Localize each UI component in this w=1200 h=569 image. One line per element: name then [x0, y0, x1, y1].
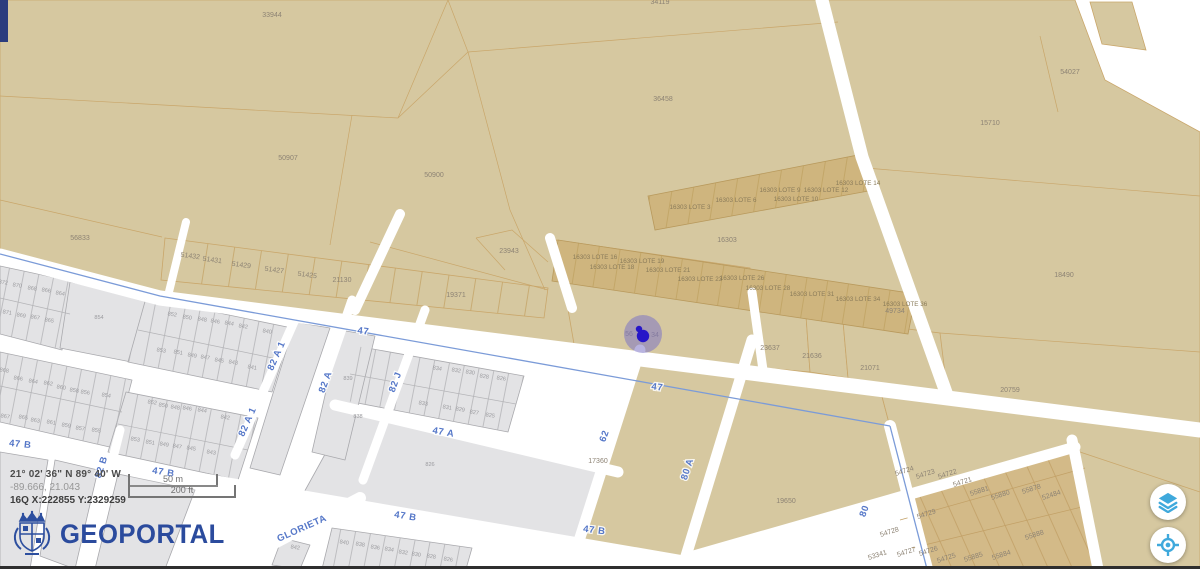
parcel-label: 854 — [94, 315, 103, 321]
parcel-label: 33944 — [262, 12, 282, 19]
street-label: 47 — [357, 325, 370, 337]
street-label: 47 — [651, 381, 664, 393]
locate-icon — [1157, 534, 1179, 556]
sidebar-edge[interactable] — [0, 0, 8, 42]
street-label: 47 B — [9, 438, 32, 451]
lote-parcel-label: 16303 LOTE 26 — [720, 275, 765, 282]
parcel-label: 50907 — [278, 155, 298, 162]
coords-utm: 16Q X:222855 Y:2329259 — [10, 494, 126, 507]
parcel-label: 36458 — [653, 96, 673, 103]
parcel-label: 16303 — [717, 237, 737, 244]
coords-decimal: -89.666, 21.043 — [10, 481, 126, 494]
lote-parcel-label: 16303 LOTE 18 — [590, 264, 635, 271]
lote-parcel-label: 16303 LOTE 23 — [678, 276, 723, 283]
parcel-label: 18490 — [1054, 272, 1074, 279]
parcel-label: 17360 — [588, 458, 608, 465]
coordinate-readout: 21° 02' 36" N 89° 40' W -89.666, 21.043 … — [10, 468, 126, 507]
parcel-label: 872 — [0, 279, 8, 287]
lote-parcel-label: 16303 LOTE 12 — [804, 187, 849, 194]
lote-parcel-label: 16303 LOTE 9 — [760, 187, 801, 194]
coords-dms: 21° 02' 36" N 89° 40' W — [10, 468, 126, 481]
parcel-label: 21636 — [802, 353, 822, 360]
brand-name: GEOPORTAL — [60, 519, 225, 550]
parcel-label: 50900 — [424, 172, 444, 179]
parcel-label: 19371 — [446, 292, 466, 299]
lote-parcel-label: 16303 LOTE 31 — [790, 291, 835, 298]
parcel-label: 21130 — [333, 277, 352, 284]
parcel-label: 54027 — [1060, 69, 1080, 76]
city-crest-icon — [12, 510, 52, 558]
parcel-label: 23637 — [760, 345, 780, 352]
parcel-label: 21071 — [860, 365, 880, 372]
lote-parcel-label: 16303 LOTE 36 — [883, 301, 928, 308]
lote-parcel-label: 16303 LOTE 34 — [836, 296, 881, 303]
parcel-21636 — [806, 316, 848, 378]
lote-parcel-label: 16303 LOTE 3 — [670, 204, 711, 211]
marker-dot-tip — [636, 326, 642, 332]
parcel-label: 15710 — [980, 120, 1000, 127]
locate-button[interactable] — [1150, 527, 1186, 563]
parcel-label: 49734 — [885, 308, 905, 315]
parcel-label: 838 — [353, 414, 362, 420]
scale-imperial: 200 ft — [128, 485, 236, 498]
parcel-label: 23943 — [499, 248, 519, 255]
lote-parcel-label: 16303 LOTE 28 — [746, 285, 791, 292]
parcel-label: 34119 — [651, 0, 670, 6]
parcel-label: 826 — [425, 462, 434, 468]
parcel-label: 56833 — [70, 235, 90, 242]
geoportal-logo[interactable]: GEOPORTAL — [12, 510, 234, 558]
layers-button[interactable] — [1150, 484, 1186, 520]
layers-icon — [1157, 491, 1179, 513]
lote-parcel-label: 16303 LOTE 14 — [836, 180, 881, 187]
lote-parcel-label: 16303 LOTE 16 — [573, 254, 618, 261]
parcel-label: 20759 — [1000, 387, 1020, 394]
geoportal-app: 3394434119364585090750900540271571056833… — [0, 0, 1200, 569]
scale-bar: 50 m 200 ft — [128, 474, 236, 498]
location-marker[interactable] — [624, 315, 662, 353]
parcel-label: 839 — [343, 376, 352, 382]
lote-parcel-label: 16303 LOTE 10 — [774, 196, 819, 203]
lote-parcel-label: 16303 LOTE 21 — [646, 267, 691, 274]
parcel-label: 19650 — [776, 498, 796, 505]
lote-parcel-label: 16303 LOTE 6 — [716, 197, 757, 204]
